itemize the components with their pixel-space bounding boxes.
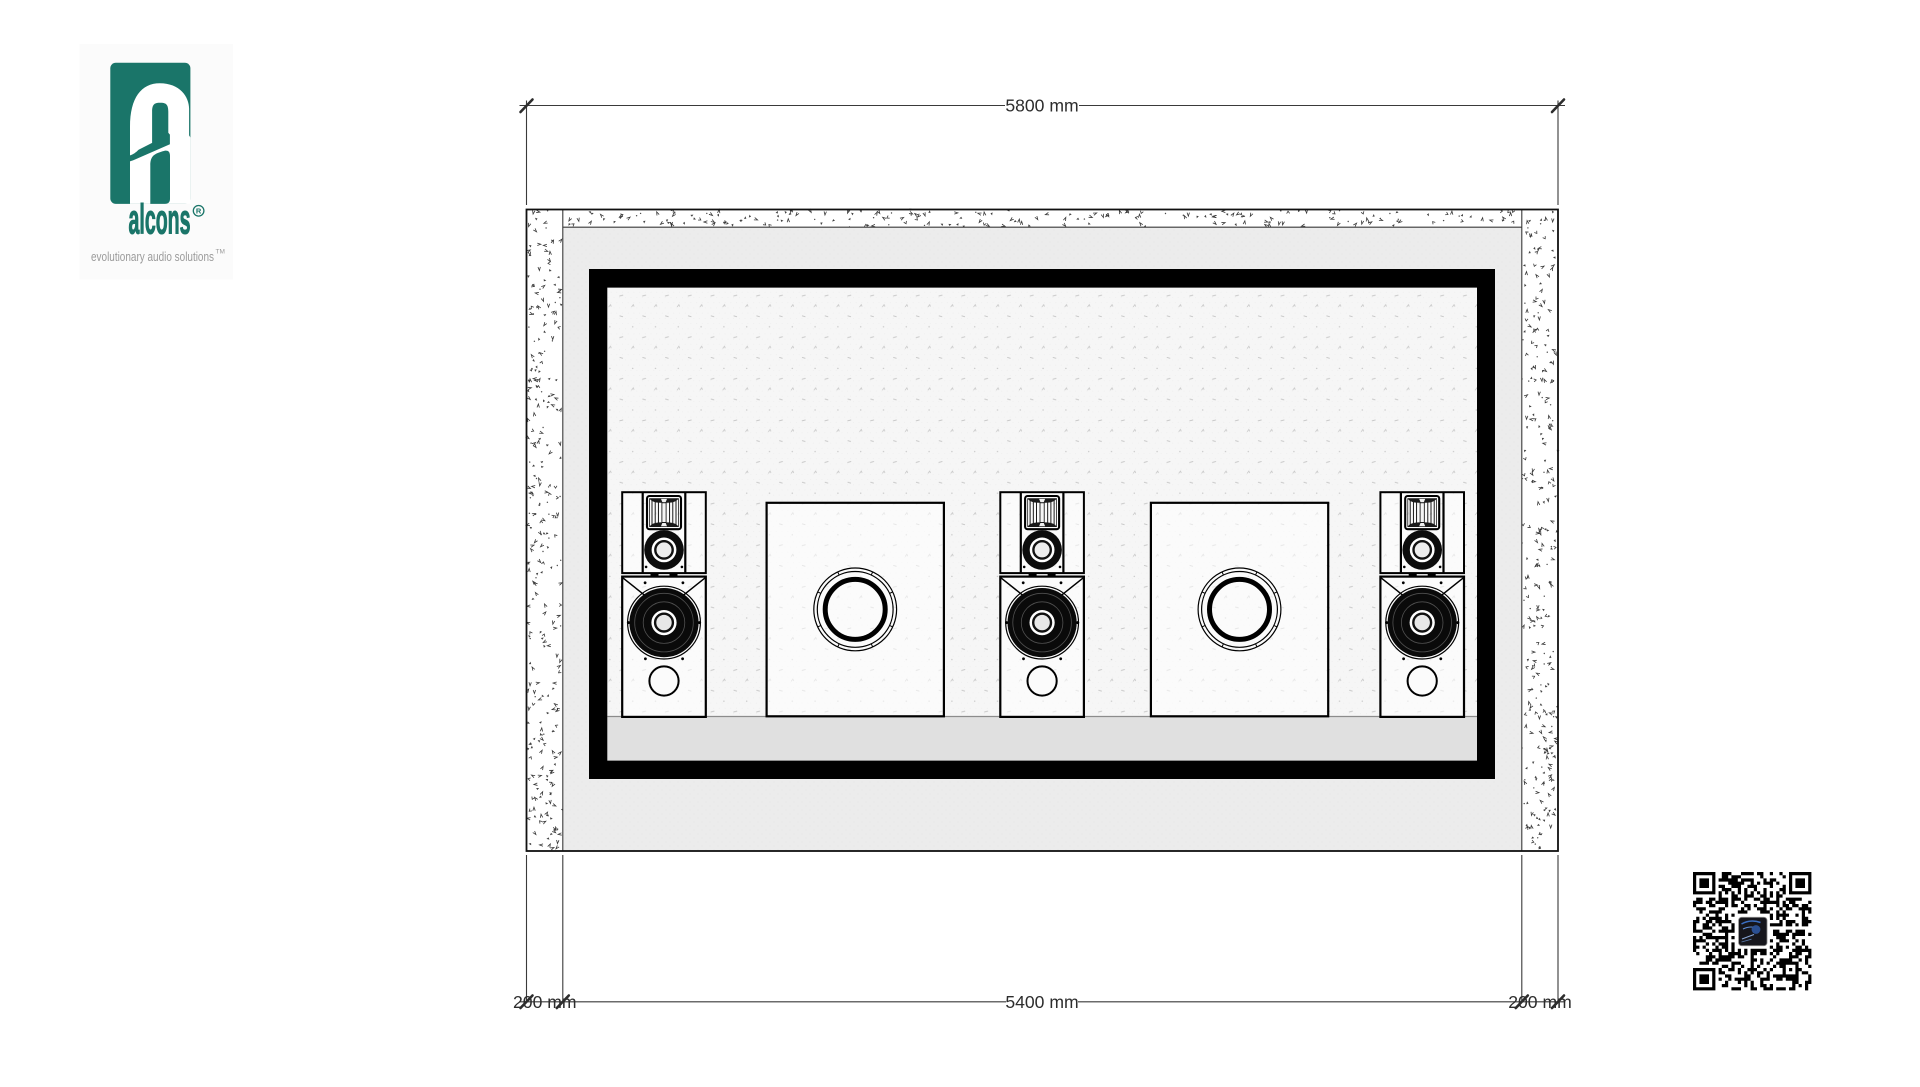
svg-text:TM: TM xyxy=(216,249,225,256)
svg-text:R: R xyxy=(196,207,202,216)
svg-text:200 mm: 200 mm xyxy=(1508,992,1572,1012)
svg-text:alcons: alcons xyxy=(129,196,191,243)
svg-text:5400 mm: 5400 mm xyxy=(1005,992,1078,1012)
svg-text:200 mm: 200 mm xyxy=(513,992,577,1012)
svg-text:evolutionary audio solutions: evolutionary audio solutions xyxy=(91,249,214,264)
svg-text:5800 mm: 5800 mm xyxy=(1005,96,1078,116)
